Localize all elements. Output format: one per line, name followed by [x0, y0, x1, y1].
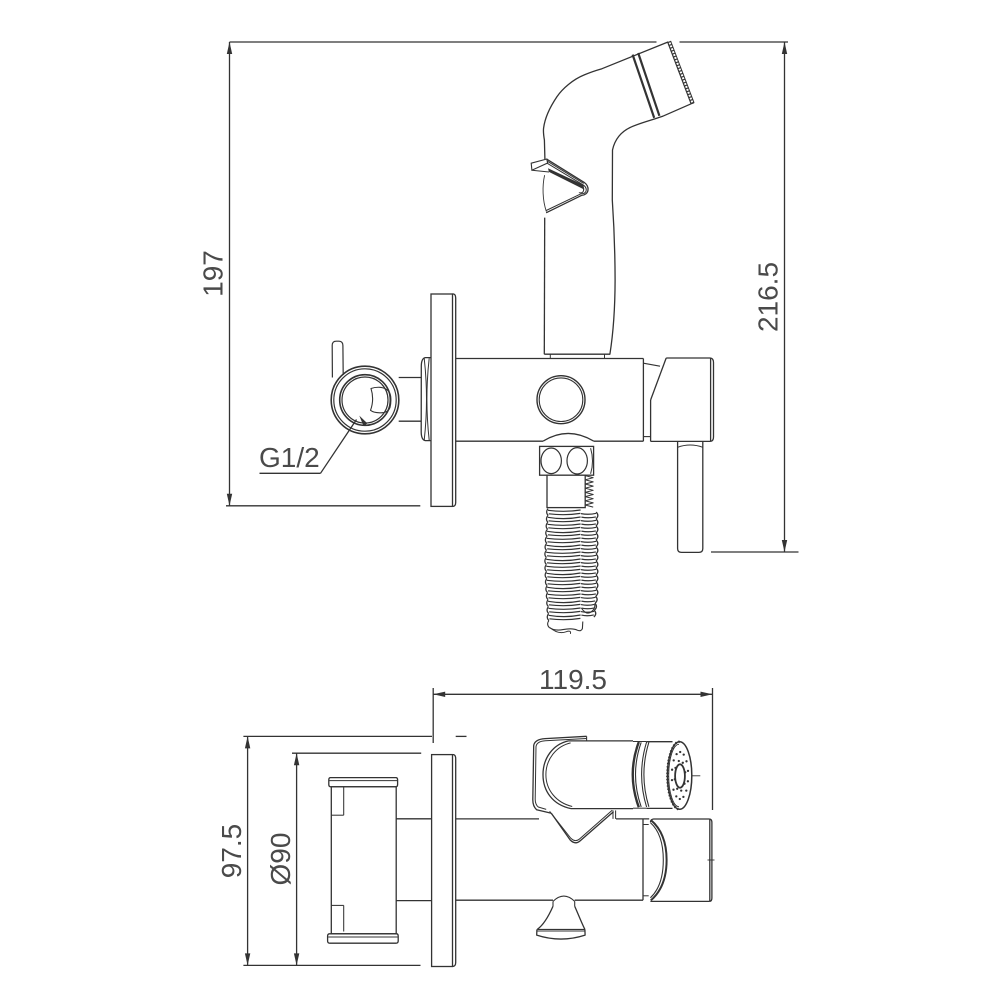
svg-text:119.5: 119.5: [539, 664, 607, 695]
svg-text:197: 197: [198, 250, 229, 297]
svg-text:216.5: 216.5: [753, 262, 784, 332]
svg-text:97.5: 97.5: [216, 824, 247, 879]
svg-text:G1/2: G1/2: [259, 442, 320, 473]
svg-text:Ø90: Ø90: [265, 833, 296, 886]
